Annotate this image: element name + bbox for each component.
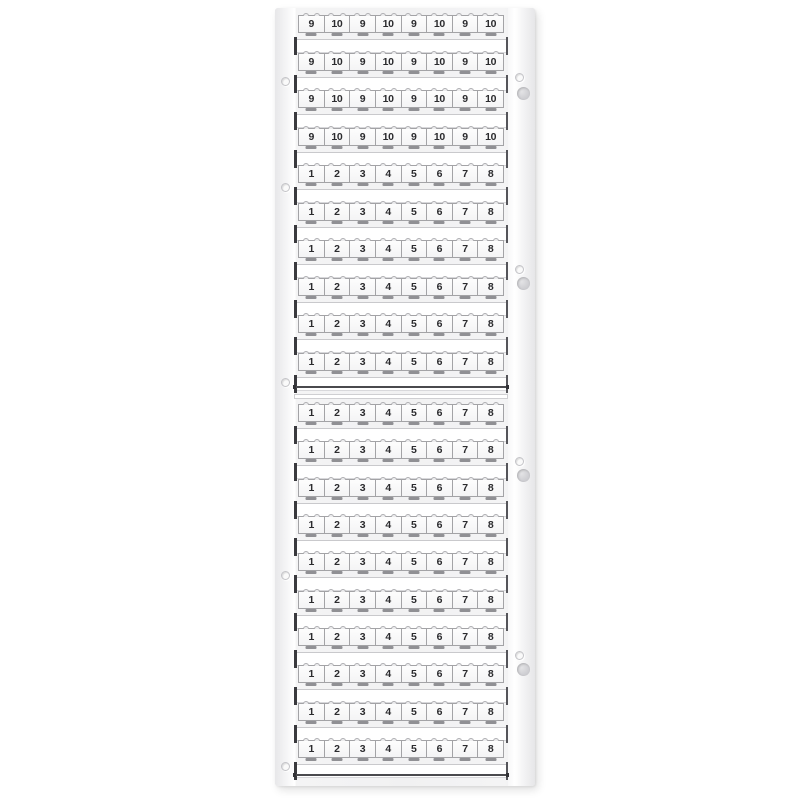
marker-tag-label: 10 xyxy=(434,131,445,143)
marker-tag-label: 1 xyxy=(309,668,315,680)
tag-nub xyxy=(314,701,320,704)
marker-tag: 8 xyxy=(477,315,504,333)
tag-foot-shadow xyxy=(434,71,445,74)
tag-foot-shadow xyxy=(331,683,342,686)
tag-nub xyxy=(303,402,309,405)
marker-tag: 8 xyxy=(477,240,504,258)
tag-foot-shadow xyxy=(357,422,368,425)
tag-foot-shadow xyxy=(485,33,496,36)
marker-tag-label: 7 xyxy=(462,706,468,718)
tag-nub xyxy=(468,439,474,442)
upper-section-bottom-line xyxy=(294,386,508,388)
tag-foot-shadow xyxy=(460,459,471,462)
marker-tag-label: 7 xyxy=(462,519,468,531)
marker-row: 12345678 xyxy=(294,200,508,236)
marker-tag: 10 xyxy=(375,15,402,33)
marker-tag-label: 2 xyxy=(334,318,340,330)
marker-tag: 4 xyxy=(375,628,402,646)
marker-tag: 5 xyxy=(401,203,428,221)
tag-nub xyxy=(340,13,346,16)
marker-tag: 9 xyxy=(401,128,428,146)
tag-foot-shadow xyxy=(383,571,394,574)
tag-nub xyxy=(431,551,437,554)
tag-nub xyxy=(391,663,397,666)
marker-tag: 2 xyxy=(324,165,351,183)
marker-tag-label: 4 xyxy=(385,482,391,494)
tag-nub xyxy=(493,738,499,741)
marker-tag-label: 7 xyxy=(462,168,468,180)
tag-foot-shadow xyxy=(485,571,496,574)
tag-foot-shadow xyxy=(306,221,317,224)
tag-foot-shadow xyxy=(383,459,394,462)
tag-nub xyxy=(328,51,334,54)
strip-end-bar xyxy=(294,375,297,393)
tag-foot-shadow xyxy=(383,758,394,761)
tag-nub xyxy=(365,126,371,129)
marker-tag: 8 xyxy=(477,479,504,497)
marker-tag: 1 xyxy=(298,553,325,571)
tag-nub xyxy=(468,589,474,592)
marker-tag-label: 4 xyxy=(385,594,391,606)
marker-tag: 2 xyxy=(324,278,351,296)
marker-tag: 6 xyxy=(426,203,453,221)
tag-foot-shadow xyxy=(331,422,342,425)
marker-tag: 5 xyxy=(401,278,428,296)
marker-tag-label: 6 xyxy=(437,668,443,680)
marker-tag-label: 4 xyxy=(385,706,391,718)
marker-tag: 3 xyxy=(349,203,376,221)
marker-tag-label: 4 xyxy=(385,743,391,755)
tag-nub xyxy=(442,163,448,166)
strip-end-bar xyxy=(506,375,508,393)
marker-tag: 9 xyxy=(298,90,325,108)
tag-nub xyxy=(365,551,371,554)
marker-tag: 2 xyxy=(324,404,351,422)
tag-nub xyxy=(493,589,499,592)
tag-nub xyxy=(405,238,411,241)
tag-nub xyxy=(314,13,320,16)
marker-tag-strip: 12345678 xyxy=(298,740,504,758)
marker-tag: 6 xyxy=(426,516,453,534)
tag-nub xyxy=(431,626,437,629)
tag-nub xyxy=(354,313,360,316)
marker-tag-label: 7 xyxy=(462,407,468,419)
tag-foot-shadow xyxy=(357,183,368,186)
marker-row: 12345678 xyxy=(294,662,508,698)
marker-tag: 3 xyxy=(349,628,376,646)
tag-nub xyxy=(303,663,309,666)
tag-nub xyxy=(391,88,397,91)
marker-tag: 8 xyxy=(477,703,504,721)
marker-tag-label: 6 xyxy=(437,631,443,643)
tag-nub xyxy=(442,88,448,91)
tag-foot-shadow xyxy=(434,221,445,224)
mounting-hole xyxy=(281,378,290,387)
marker-tag-strip: 910910910910 xyxy=(298,90,504,108)
tag-nub xyxy=(456,402,462,405)
tag-foot-shadow xyxy=(460,221,471,224)
marker-tag-strip: 910910910910 xyxy=(298,128,504,146)
marker-tag: 6 xyxy=(426,553,453,571)
tag-nub xyxy=(482,477,488,480)
tag-nub xyxy=(391,738,397,741)
marker-tag: 9 xyxy=(452,53,479,71)
marker-tag: 10 xyxy=(426,90,453,108)
tag-nub xyxy=(482,88,488,91)
tag-nub xyxy=(405,551,411,554)
tag-foot-shadow xyxy=(306,296,317,299)
tag-nub xyxy=(482,402,488,405)
marker-tag: 9 xyxy=(298,128,325,146)
tag-foot-shadow xyxy=(306,422,317,425)
marker-tag-label: 5 xyxy=(411,668,417,680)
marker-tag-label: 5 xyxy=(411,482,417,494)
tag-nub xyxy=(493,514,499,517)
tag-foot-shadow xyxy=(485,71,496,74)
tag-nub xyxy=(391,51,397,54)
marker-tag: 3 xyxy=(349,516,376,534)
marker-tag: 5 xyxy=(401,516,428,534)
tag-foot-shadow xyxy=(485,497,496,500)
marker-tag-label: 7 xyxy=(462,356,468,368)
tag-nub xyxy=(442,351,448,354)
marker-tag-label: 7 xyxy=(462,444,468,456)
tag-nub xyxy=(431,88,437,91)
marker-tag-label: 10 xyxy=(331,93,342,105)
tag-nub xyxy=(391,589,397,592)
tag-nub xyxy=(456,351,462,354)
marker-tag: 10 xyxy=(324,128,351,146)
tag-foot-shadow xyxy=(485,221,496,224)
marker-tag-label: 5 xyxy=(411,356,417,368)
tag-nub xyxy=(431,126,437,129)
marker-tag: 7 xyxy=(452,240,479,258)
tag-nub xyxy=(405,313,411,316)
tag-foot-shadow xyxy=(357,146,368,149)
tag-nub xyxy=(365,402,371,405)
tag-foot-shadow xyxy=(331,534,342,537)
tag-nub xyxy=(354,439,360,442)
tag-nub xyxy=(354,163,360,166)
marker-tag-strip: 12345678 xyxy=(298,665,504,683)
tag-nub xyxy=(431,51,437,54)
marker-tag-strip: 12345678 xyxy=(298,628,504,646)
tag-nub xyxy=(416,477,422,480)
tag-nub xyxy=(493,439,499,442)
marker-tag-label: 8 xyxy=(488,519,494,531)
tag-nub xyxy=(416,238,422,241)
tag-nub xyxy=(303,201,309,204)
marker-tag: 2 xyxy=(324,315,351,333)
marker-tag: 6 xyxy=(426,315,453,333)
tag-nub xyxy=(314,514,320,517)
tag-nub xyxy=(365,439,371,442)
tag-foot-shadow xyxy=(434,758,445,761)
marker-tag-label: 4 xyxy=(385,318,391,330)
tag-nub xyxy=(468,738,474,741)
marker-tag-label: 7 xyxy=(462,281,468,293)
marker-tag-label: 5 xyxy=(411,706,417,718)
tag-foot-shadow xyxy=(485,534,496,537)
tag-nub xyxy=(431,738,437,741)
marker-tag-label: 4 xyxy=(385,243,391,255)
tag-foot-shadow xyxy=(306,71,317,74)
tag-nub xyxy=(416,351,422,354)
marker-tag-label: 7 xyxy=(462,206,468,218)
marker-tag-label: 10 xyxy=(383,56,394,68)
tag-nub xyxy=(416,439,422,442)
tag-nub xyxy=(314,439,320,442)
tag-nub xyxy=(380,88,386,91)
marker-tag: 2 xyxy=(324,740,351,758)
tag-nub xyxy=(468,551,474,554)
tag-nub xyxy=(380,163,386,166)
marker-tag: 7 xyxy=(452,278,479,296)
tag-nub xyxy=(314,313,320,316)
tag-nub xyxy=(354,201,360,204)
marker-tag: 10 xyxy=(324,15,351,33)
tag-nub xyxy=(365,88,371,91)
tag-foot-shadow xyxy=(460,146,471,149)
tag-foot-shadow xyxy=(383,497,394,500)
marker-tag: 8 xyxy=(477,278,504,296)
tag-foot-shadow xyxy=(434,33,445,36)
tag-nub xyxy=(416,663,422,666)
marker-tag-label: 1 xyxy=(309,519,315,531)
tag-nub xyxy=(303,738,309,741)
tag-nub xyxy=(493,238,499,241)
tag-foot-shadow xyxy=(434,296,445,299)
marker-tag-label: 9 xyxy=(360,131,366,143)
marker-row: 910910910910 xyxy=(294,12,508,48)
marker-tag-label: 10 xyxy=(434,18,445,30)
tag-nub xyxy=(493,477,499,480)
marker-tag: 4 xyxy=(375,479,402,497)
marker-tag-label: 3 xyxy=(360,482,366,494)
tag-foot-shadow xyxy=(434,333,445,336)
marker-tag: 6 xyxy=(426,740,453,758)
tag-nub xyxy=(416,626,422,629)
tag-foot-shadow xyxy=(434,646,445,649)
marker-tag: 4 xyxy=(375,516,402,534)
marker-tag: 1 xyxy=(298,203,325,221)
marker-tag: 10 xyxy=(375,128,402,146)
tag-nub xyxy=(354,351,360,354)
tag-nub xyxy=(468,126,474,129)
tag-foot-shadow xyxy=(357,646,368,649)
tag-foot-shadow xyxy=(485,609,496,612)
tag-foot-shadow xyxy=(306,108,317,111)
tag-foot-shadow xyxy=(434,146,445,149)
tag-nub xyxy=(354,13,360,16)
tag-foot-shadow xyxy=(306,683,317,686)
tag-foot-shadow xyxy=(357,571,368,574)
marker-tag-label: 6 xyxy=(437,407,443,419)
tag-nub xyxy=(405,351,411,354)
marker-tag: 6 xyxy=(426,240,453,258)
marker-tag-label: 2 xyxy=(334,482,340,494)
tag-nub xyxy=(456,276,462,279)
marker-tag-label: 10 xyxy=(331,18,342,30)
tag-foot-shadow xyxy=(383,371,394,374)
tag-nub xyxy=(468,51,474,54)
tag-nub xyxy=(482,313,488,316)
tag-foot-shadow xyxy=(331,371,342,374)
tag-nub xyxy=(365,589,371,592)
marker-tag: 5 xyxy=(401,740,428,758)
marker-tag: 2 xyxy=(324,516,351,534)
marker-tag: 5 xyxy=(401,240,428,258)
marker-tag: 7 xyxy=(452,165,479,183)
marker-tag: 2 xyxy=(324,703,351,721)
tag-nub xyxy=(354,738,360,741)
tag-nub xyxy=(303,126,309,129)
marker-tag-label: 3 xyxy=(360,407,366,419)
marker-tag: 8 xyxy=(477,404,504,422)
tag-nub xyxy=(456,738,462,741)
marker-tag-label: 9 xyxy=(360,93,366,105)
mounting-hole xyxy=(281,571,290,580)
tag-nub xyxy=(468,201,474,204)
marker-tag: 7 xyxy=(452,353,479,371)
marker-tag: 5 xyxy=(401,404,428,422)
tag-foot-shadow xyxy=(306,146,317,149)
tag-nub xyxy=(314,276,320,279)
marker-tag-label: 7 xyxy=(462,668,468,680)
marker-tag: 2 xyxy=(324,240,351,258)
tag-foot-shadow xyxy=(485,422,496,425)
tag-nub xyxy=(405,126,411,129)
tag-nub xyxy=(456,663,462,666)
tag-nub xyxy=(340,88,346,91)
tag-foot-shadow xyxy=(460,333,471,336)
tag-nub xyxy=(354,88,360,91)
marker-tag-label: 5 xyxy=(411,281,417,293)
tag-nub xyxy=(482,514,488,517)
tag-nub xyxy=(354,51,360,54)
marker-tag-label: 9 xyxy=(309,18,315,30)
marker-tag-label: 1 xyxy=(309,356,315,368)
tag-nub xyxy=(391,201,397,204)
tag-nub xyxy=(328,626,334,629)
marker-tag-label: 6 xyxy=(437,243,443,255)
marker-tag-label: 9 xyxy=(309,93,315,105)
marker-tag: 4 xyxy=(375,703,402,721)
tag-nub xyxy=(380,402,386,405)
marker-row: 12345678 xyxy=(294,237,508,273)
tag-foot-shadow xyxy=(434,422,445,425)
marker-tag: 2 xyxy=(324,353,351,371)
marker-tag: 4 xyxy=(375,665,402,683)
tag-nub xyxy=(365,13,371,16)
tag-nub xyxy=(328,276,334,279)
marker-tag: 5 xyxy=(401,353,428,371)
tag-nub xyxy=(456,88,462,91)
tag-foot-shadow xyxy=(383,646,394,649)
marker-tag: 8 xyxy=(477,740,504,758)
tag-nub xyxy=(314,163,320,166)
tag-foot-shadow xyxy=(460,534,471,537)
tag-nub xyxy=(365,738,371,741)
marker-tag: 9 xyxy=(349,90,376,108)
marker-tag-label: 1 xyxy=(309,281,315,293)
marker-tag: 4 xyxy=(375,278,402,296)
tag-nub xyxy=(442,51,448,54)
tag-foot-shadow xyxy=(460,497,471,500)
marker-tag-label: 3 xyxy=(360,668,366,680)
marker-tag: 8 xyxy=(477,441,504,459)
tag-nub xyxy=(340,51,346,54)
marker-tag-label: 2 xyxy=(334,743,340,755)
marker-tag: 1 xyxy=(298,703,325,721)
marker-tag-label: 5 xyxy=(411,556,417,568)
tag-nub xyxy=(365,626,371,629)
tag-nub xyxy=(482,351,488,354)
tag-nub xyxy=(416,88,422,91)
tag-nub xyxy=(493,163,499,166)
marker-tag: 8 xyxy=(477,516,504,534)
tag-nub xyxy=(328,439,334,442)
marker-tag-label: 1 xyxy=(309,482,315,494)
tag-nub xyxy=(340,402,346,405)
tag-nub xyxy=(405,663,411,666)
tag-nub xyxy=(405,626,411,629)
marker-tag-label: 10 xyxy=(434,93,445,105)
tag-foot-shadow xyxy=(306,721,317,724)
marker-tag: 1 xyxy=(298,165,325,183)
marker-tag-label: 6 xyxy=(437,356,443,368)
tag-nub xyxy=(314,238,320,241)
tag-nub xyxy=(442,276,448,279)
tag-nub xyxy=(340,163,346,166)
marker-tag: 7 xyxy=(452,665,479,683)
tag-nub xyxy=(303,351,309,354)
tag-nub xyxy=(468,626,474,629)
tag-foot-shadow xyxy=(408,108,419,111)
tag-foot-shadow xyxy=(460,683,471,686)
tag-foot-shadow xyxy=(357,609,368,612)
tag-foot-shadow xyxy=(306,33,317,36)
tag-foot-shadow xyxy=(331,71,342,74)
marker-tag-label: 4 xyxy=(385,631,391,643)
tag-foot-shadow xyxy=(434,683,445,686)
marker-tag-strip: 12345678 xyxy=(298,591,504,609)
tag-foot-shadow xyxy=(357,721,368,724)
mounting-hole xyxy=(515,265,524,274)
marker-tag-label: 10 xyxy=(485,131,496,143)
tag-nub xyxy=(303,276,309,279)
tag-nub xyxy=(442,238,448,241)
tag-nub xyxy=(482,201,488,204)
tag-nub xyxy=(328,88,334,91)
tag-nub xyxy=(468,313,474,316)
tag-nub xyxy=(340,514,346,517)
tag-foot-shadow xyxy=(306,497,317,500)
tag-nub xyxy=(303,626,309,629)
marker-tag: 5 xyxy=(401,591,428,609)
tag-nub xyxy=(391,351,397,354)
marker-tag-label: 7 xyxy=(462,743,468,755)
tag-foot-shadow xyxy=(383,258,394,261)
tag-nub xyxy=(340,626,346,629)
marker-tag: 9 xyxy=(401,53,428,71)
marker-tag-label: 9 xyxy=(309,56,315,68)
tag-nub xyxy=(328,163,334,166)
marker-tag-label: 10 xyxy=(383,18,394,30)
marker-tag: 7 xyxy=(452,553,479,571)
tag-nub xyxy=(456,514,462,517)
marker-tag-strip: 12345678 xyxy=(298,553,504,571)
